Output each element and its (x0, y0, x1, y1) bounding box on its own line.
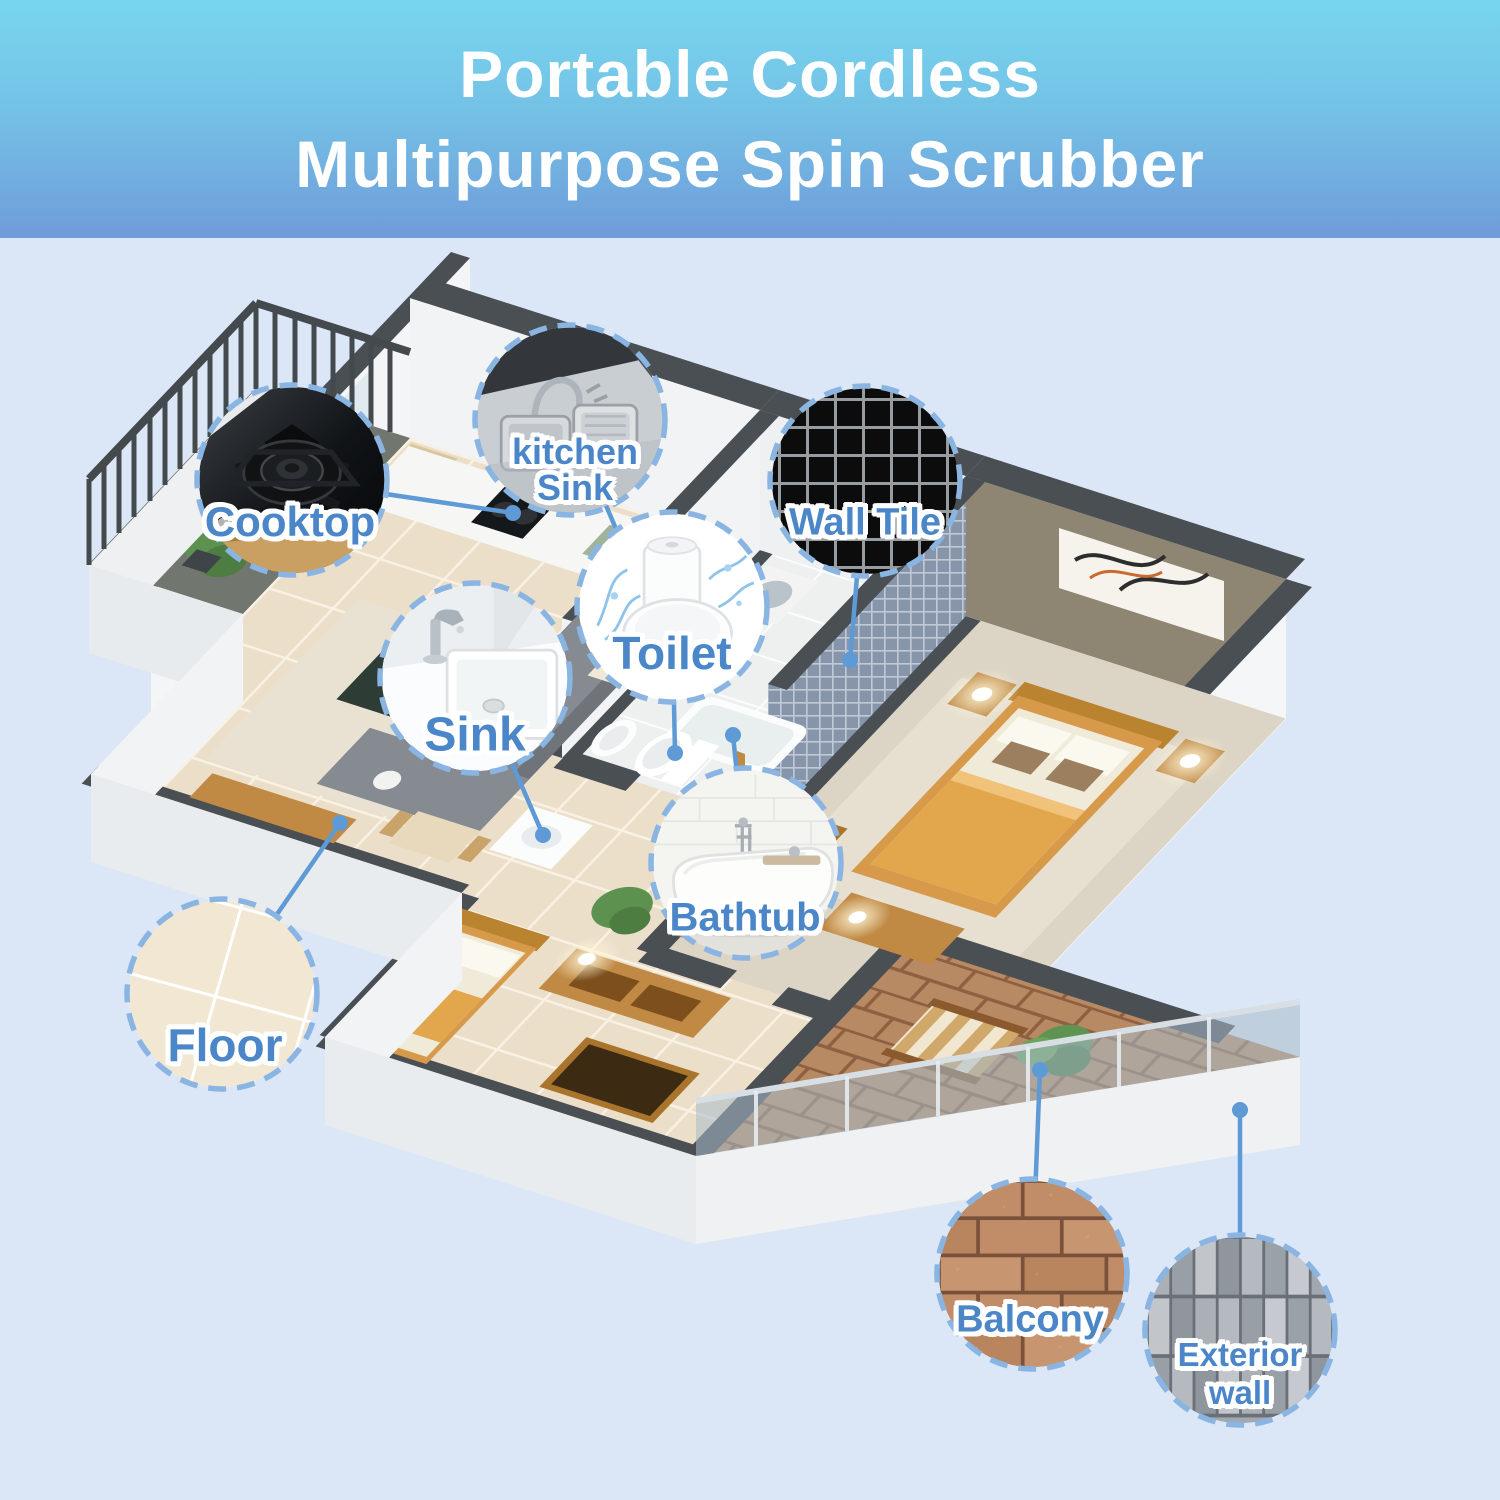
callout-label-toilet: Toilet (612, 626, 731, 680)
callout-balcony (932, 1174, 1132, 1374)
callout-label-exterior-wall: Exterior wall (1178, 1336, 1303, 1412)
callout-wall-tile (765, 381, 965, 581)
callout-label-cooktop: Cooktop (205, 498, 375, 546)
callout-label-balcony: Balcony (956, 1299, 1104, 1342)
callout-cooktop (192, 380, 392, 580)
callout-label-sink: Sink (424, 708, 525, 763)
callout-label-floor: Floor (168, 1018, 283, 1072)
callout-label-kitchen-sink: kitchen Sink (512, 434, 638, 506)
callout-label-bathtub: Bathtub (669, 896, 820, 941)
callout-label-wall-tile: Wall Tile (789, 502, 941, 545)
